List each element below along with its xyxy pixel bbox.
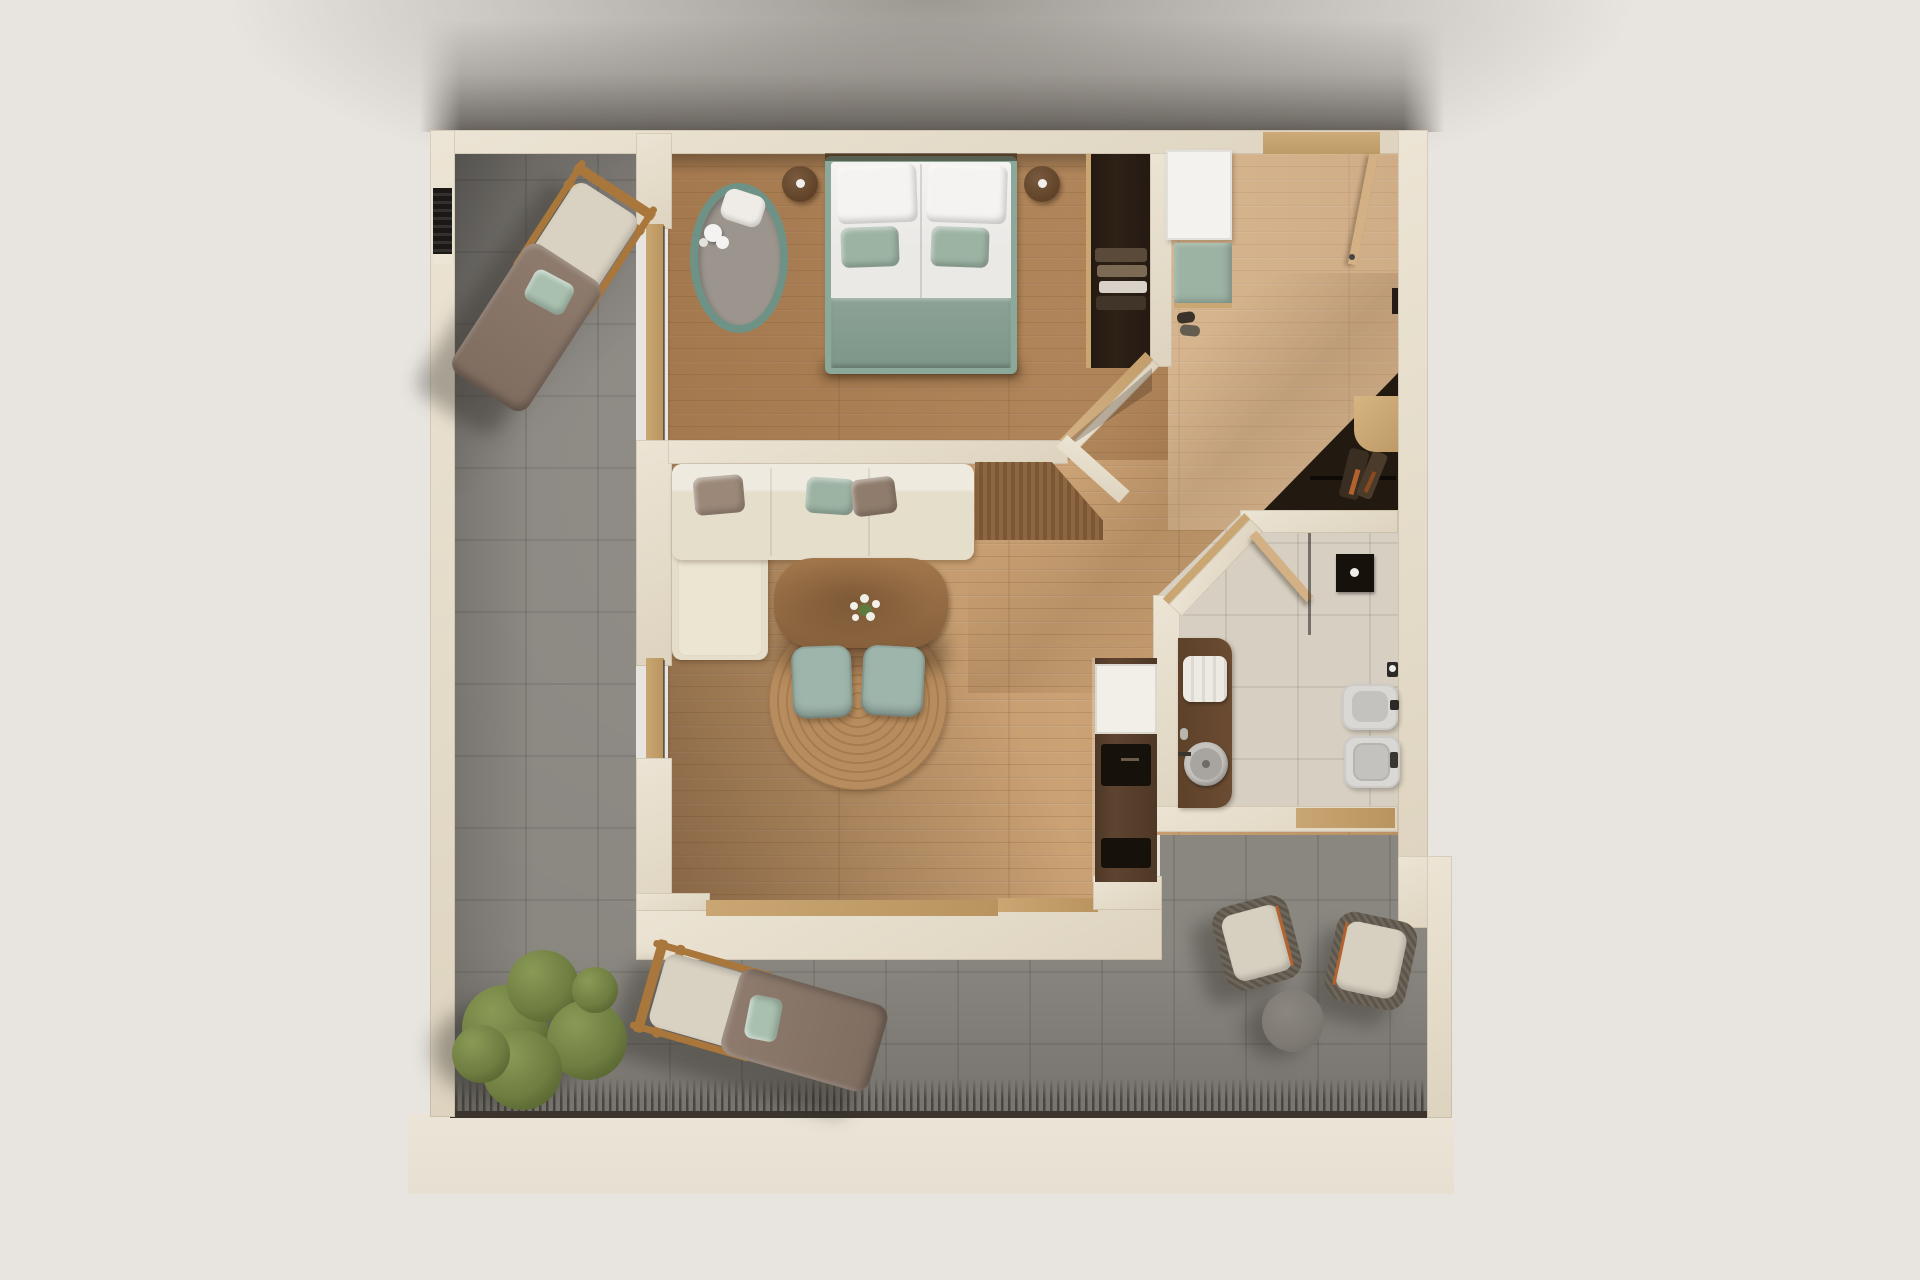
wall-bath-north bbox=[1240, 510, 1398, 533]
toilet-seat bbox=[1353, 743, 1390, 781]
kitchen-sink-inset bbox=[1101, 744, 1151, 786]
kitchen-counter-white bbox=[1095, 664, 1157, 734]
entry-shoe-2 bbox=[1179, 324, 1200, 337]
shower-glass-panel bbox=[1308, 533, 1311, 635]
niche-desk-shelf bbox=[1354, 396, 1398, 452]
bidet-bowl bbox=[1352, 691, 1388, 722]
bed-pillow-left bbox=[836, 164, 918, 225]
double-bed bbox=[825, 156, 1017, 374]
bed-pillow-right bbox=[926, 164, 1008, 225]
bedroom-window-glass bbox=[663, 226, 665, 444]
vanity-towels bbox=[1183, 656, 1227, 702]
sofa-seam-1 bbox=[770, 468, 772, 556]
bedroom-window-sill bbox=[646, 224, 664, 446]
dining-chair-2 bbox=[860, 644, 926, 717]
entry-bench-wood-edge bbox=[1174, 303, 1232, 308]
wall-right-upper bbox=[1398, 130, 1428, 928]
wall-south-corner bbox=[636, 893, 710, 911]
wall-west-mid bbox=[636, 440, 672, 666]
sofa-pillow-brown2 bbox=[850, 475, 898, 517]
living-window-glass bbox=[663, 660, 665, 762]
wardrobe-clothes3 bbox=[1099, 281, 1147, 293]
kitchen-faucet bbox=[1121, 758, 1139, 761]
shower-head-dot bbox=[1350, 568, 1359, 577]
toilet-paper-roll bbox=[1389, 665, 1396, 672]
plush-toy-ear bbox=[699, 238, 708, 247]
shrub-tree bbox=[452, 945, 630, 1117]
bed-sage-pillow-left bbox=[840, 226, 899, 268]
toilet-flush bbox=[1390, 752, 1398, 768]
armchair-1-cushion bbox=[1219, 902, 1295, 983]
flower-dot3 bbox=[872, 600, 880, 608]
bath-terrace-sill bbox=[1296, 808, 1395, 828]
flower-dot5 bbox=[852, 614, 859, 621]
sink-faucet bbox=[1178, 752, 1191, 756]
sofa-pillow-sage bbox=[805, 476, 855, 515]
kitchenette-cabinet bbox=[1095, 658, 1157, 882]
entry-closet-white bbox=[1166, 150, 1232, 240]
tree-canopy-5 bbox=[452, 1025, 510, 1083]
wall-right-lower bbox=[1427, 856, 1452, 1118]
bed-runner-blanket bbox=[831, 298, 1011, 368]
wall-vent-sill bbox=[433, 254, 452, 264]
nightstand-right-cup bbox=[1038, 179, 1047, 188]
bed-center-crease bbox=[920, 164, 922, 304]
dining-chair-1 bbox=[791, 645, 853, 719]
entry-door-handle bbox=[1349, 254, 1355, 260]
wall-bath-west bbox=[1153, 595, 1180, 832]
sofa-pillow-brown bbox=[692, 474, 745, 516]
plan-base-slab bbox=[408, 1114, 1454, 1194]
soap-dispenser bbox=[1180, 728, 1188, 740]
kitchen-appliance-inset bbox=[1101, 838, 1151, 868]
headboard-shadow bbox=[825, 153, 1017, 161]
outdoor-side-table bbox=[1262, 990, 1324, 1052]
wall-bedroom-south bbox=[668, 440, 1068, 464]
living-window-sill bbox=[646, 658, 664, 764]
sofa-ottoman-cushion bbox=[678, 556, 762, 656]
flower-dot bbox=[850, 602, 858, 610]
wardrobe-clothes bbox=[1095, 248, 1147, 262]
wall-cast-shadow bbox=[420, 20, 1444, 132]
flower-dot4 bbox=[866, 612, 875, 621]
tree-canopy-6 bbox=[572, 967, 618, 1013]
table-flowers bbox=[848, 592, 886, 624]
flower-dot2 bbox=[860, 594, 869, 603]
bed-sage-pillow-right bbox=[930, 226, 989, 268]
entry-door-panel bbox=[1263, 132, 1380, 154]
wall-vent-niche bbox=[433, 188, 452, 254]
living-door-sill2 bbox=[998, 898, 1098, 912]
plush-toy-head bbox=[716, 236, 729, 249]
wardrobe-clothes4 bbox=[1096, 296, 1146, 310]
wardrobe-side-edge bbox=[1086, 153, 1091, 368]
entry-bench-sage bbox=[1174, 243, 1232, 305]
wardrobe-clothes2 bbox=[1097, 265, 1147, 277]
floor-plan-scene bbox=[0, 0, 1920, 1280]
kitchenette-edge-light bbox=[1092, 658, 1095, 882]
living-door-sill bbox=[706, 900, 998, 916]
nightstand-left-cup bbox=[796, 179, 805, 188]
wardrobe-open bbox=[1091, 153, 1152, 368]
bidet-tap bbox=[1390, 700, 1399, 710]
sink-drain-dot bbox=[1202, 760, 1210, 768]
